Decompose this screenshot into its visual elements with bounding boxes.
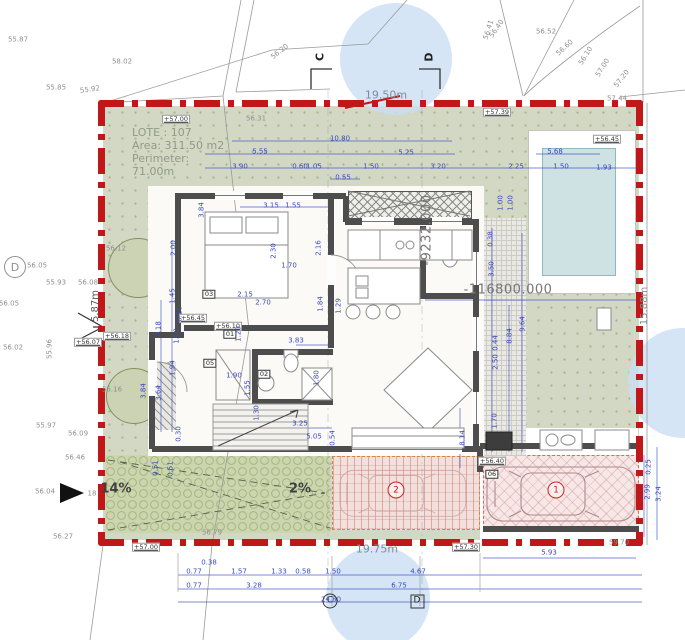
elevation-marker: +57.30 bbox=[452, 543, 480, 552]
dimension-label: 2.70 bbox=[255, 300, 271, 307]
dimension-label: 2.50 bbox=[493, 354, 500, 370]
dimension-label: 1.00 bbox=[508, 195, 515, 211]
dimension-label: 2.15 bbox=[237, 292, 253, 299]
dimension-label: 1.30 bbox=[254, 405, 261, 421]
dimension-label: 3.24 bbox=[656, 486, 663, 502]
dimension-label: 5.68 bbox=[547, 149, 563, 156]
survey-elevation-label: 56.52 bbox=[536, 29, 556, 36]
dimension-label: 3.25 bbox=[292, 421, 308, 428]
dimension-label: 5.05 bbox=[306, 434, 322, 441]
dimension-label: 0.44 bbox=[493, 335, 500, 351]
door-tag: 02 bbox=[257, 370, 270, 379]
dimension-label: 3.64 bbox=[156, 385, 163, 401]
elevation-marker: +57.00 bbox=[132, 543, 160, 552]
survey-elevation-label: 56.08 bbox=[78, 280, 98, 287]
site-plan-canvas: LOTE : 107 Area: 311.50 m2 Perimeter: 71… bbox=[0, 0, 685, 640]
dimension-label: 1.29 bbox=[336, 298, 343, 314]
dimension-label: 1.57 bbox=[231, 569, 247, 576]
dimension-label: 1.50 bbox=[553, 164, 569, 171]
dimension-label: 0.58 bbox=[295, 569, 311, 576]
survey-elevation-label: 56.04 bbox=[35, 489, 55, 496]
survey-elevation-label: 55.87 bbox=[8, 37, 28, 44]
dimension-label: 0.54 bbox=[330, 430, 337, 446]
dimension-label: 4.18 bbox=[156, 321, 163, 337]
dimension-label: 0.25 bbox=[646, 459, 653, 475]
dimension-label: 3.50 bbox=[489, 261, 496, 277]
elevation-marker: +56.07 bbox=[74, 338, 102, 347]
dimension-label: 1.33 bbox=[271, 569, 287, 576]
survey-elevation-label: 56.05 bbox=[27, 263, 47, 270]
dimension-label: 3.20 bbox=[430, 164, 446, 171]
dimension-label: 1.50 bbox=[325, 569, 341, 576]
dimension-label: 0.38 bbox=[488, 231, 495, 247]
dimension-label: 5.55 bbox=[252, 149, 268, 156]
dimension-label: 2.25 bbox=[508, 164, 524, 171]
survey-elevation-label: 56.46 bbox=[65, 455, 85, 462]
survey-elevation-label: 56.79 bbox=[202, 530, 222, 537]
dimension-label: 0.55 bbox=[335, 175, 351, 182]
survey-elevation-label: 56.05 bbox=[0, 301, 19, 308]
survey-elevation-label: 56.60 bbox=[555, 39, 575, 58]
dimension-label: 0.51 bbox=[153, 460, 160, 476]
dimension-label: 3.83 bbox=[288, 338, 304, 345]
survey-elevation-label: 55.93 bbox=[46, 280, 66, 287]
dimension-label: 2.00 bbox=[171, 240, 178, 256]
dimension-label: 1.80 bbox=[314, 370, 321, 386]
dimension-label: 0.38 bbox=[201, 560, 217, 567]
door-tag: 06 bbox=[485, 470, 498, 479]
survey-elevation-label: 56.10 bbox=[578, 46, 595, 67]
dimension-label: 1.94 bbox=[170, 360, 177, 376]
survey-elevation-label: 55.97 bbox=[36, 423, 56, 430]
dimension-label: 24.80 bbox=[321, 597, 341, 604]
survey-elevation-label: 59.70 bbox=[609, 540, 629, 547]
door-tag: 05 bbox=[203, 359, 216, 368]
dimension-label: 1.70 bbox=[492, 413, 499, 429]
dimension-label: 8.84 bbox=[507, 328, 514, 344]
elevation-marker: +56.18 bbox=[103, 332, 131, 341]
elevation-marker: +56.45 bbox=[593, 135, 621, 144]
dimension-label: 3.15 bbox=[263, 203, 279, 210]
dimension-label: 0.16 bbox=[177, 306, 184, 322]
dimension-label: 1.70 bbox=[281, 263, 297, 270]
survey-elevation-label: 55.85 bbox=[46, 85, 66, 92]
dimension-label: 0.77 bbox=[186, 569, 202, 576]
dimension-label: 1.93 bbox=[596, 165, 612, 172]
dimension-label: 3.90 bbox=[232, 164, 248, 171]
survey-elevation-label: 57.00 bbox=[595, 58, 612, 79]
dimension-label: 3.84 bbox=[141, 383, 148, 399]
dimension-label: 2.99 bbox=[645, 484, 652, 500]
dimension-label: 1.90 bbox=[226, 373, 242, 380]
survey-elevation-label: 56.16 bbox=[102, 387, 122, 394]
survey-elevation-label: 55.96 bbox=[47, 339, 54, 359]
dimension-label: 0.30 bbox=[176, 426, 183, 442]
elevation-marker: +57.39 bbox=[483, 108, 511, 117]
survey-elevation-label: 56.20 bbox=[270, 43, 290, 61]
dimension-label: 10.80 bbox=[330, 136, 350, 143]
dimension-label: 1.00 bbox=[174, 328, 181, 344]
dimension-label: 6.75 bbox=[391, 583, 407, 590]
dimension-label: 5.93 bbox=[541, 550, 557, 557]
dimension-label: 1.55 bbox=[245, 380, 252, 396]
survey-elevation-label: 56.09 bbox=[68, 431, 88, 438]
dimension-label: 1.55 bbox=[285, 203, 301, 210]
dimension-label: 1.45 bbox=[170, 288, 177, 304]
door-tag: 03 bbox=[202, 290, 215, 299]
dimension-label: 3.84 bbox=[199, 202, 206, 218]
dimension-label: 2.30 bbox=[271, 243, 278, 259]
dimension-label: 0.77 bbox=[186, 583, 202, 590]
dimension-label: 3.28 bbox=[246, 583, 262, 590]
survey-elevation-label: 56.12 bbox=[106, 246, 126, 253]
survey-elevation-label: 57.44 bbox=[607, 96, 627, 103]
survey-elevation-label: 57.20 bbox=[613, 69, 631, 89]
dimension-label: 9.64 bbox=[520, 316, 527, 332]
elevation-marker: +56.40 bbox=[478, 457, 506, 466]
dimension-label: 1.50 bbox=[363, 164, 379, 171]
survey-elevation-label: 56.02 bbox=[3, 345, 23, 352]
survey-elevation-label: 56.27 bbox=[53, 534, 73, 541]
elevation-marker: +57.00 bbox=[162, 115, 190, 124]
dimension-label: 1.00 bbox=[498, 195, 505, 211]
dimension-label: 0.51 bbox=[168, 461, 175, 477]
dimension-label: 8.14 bbox=[460, 430, 467, 446]
dimension-label: 4.67 bbox=[410, 569, 426, 576]
dimension-label: 1.20 bbox=[236, 326, 243, 342]
dimension-label: 5.25 bbox=[398, 150, 414, 157]
survey-elevation-label: 55.92 bbox=[80, 85, 101, 95]
labels-layer: 55.8758.0255.8555.9256.2056.4156.5256.40… bbox=[0, 0, 685, 640]
dimension-label: 1.84 bbox=[318, 296, 325, 312]
dimension-label: 2.16 bbox=[316, 240, 323, 256]
dimension-label: 1.05 bbox=[306, 164, 322, 171]
survey-elevation-label: 58.02 bbox=[112, 59, 132, 66]
survey-elevation-label: 18 bbox=[88, 491, 97, 498]
survey-elevation-label: 56.31 bbox=[246, 116, 266, 123]
